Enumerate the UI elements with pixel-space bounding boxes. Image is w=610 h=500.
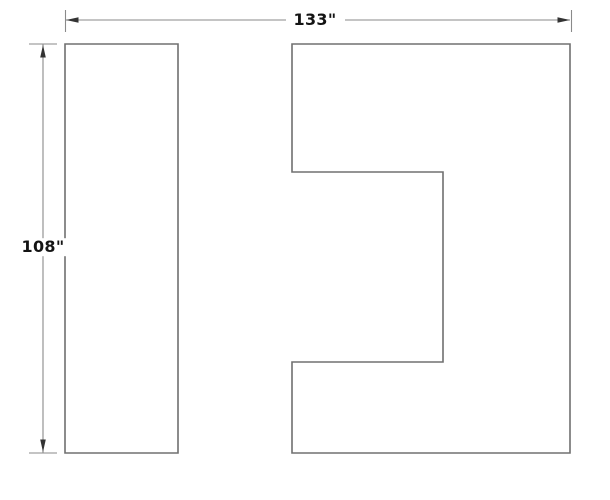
height-arrowhead-top-icon: [40, 45, 46, 58]
height-arrowhead-bottom-icon: [40, 440, 46, 453]
width-arrowhead-right-icon: [558, 17, 571, 23]
height-dimension-label: 108": [19, 238, 68, 256]
left-panel-outline: [65, 44, 178, 453]
width-dimension-label: 133": [291, 11, 340, 29]
width-arrowhead-left-icon: [66, 17, 79, 23]
drawing-svg: [0, 0, 610, 500]
technical-drawing-canvas: 133" 108": [0, 0, 610, 500]
right-panel-outline: [292, 44, 570, 453]
